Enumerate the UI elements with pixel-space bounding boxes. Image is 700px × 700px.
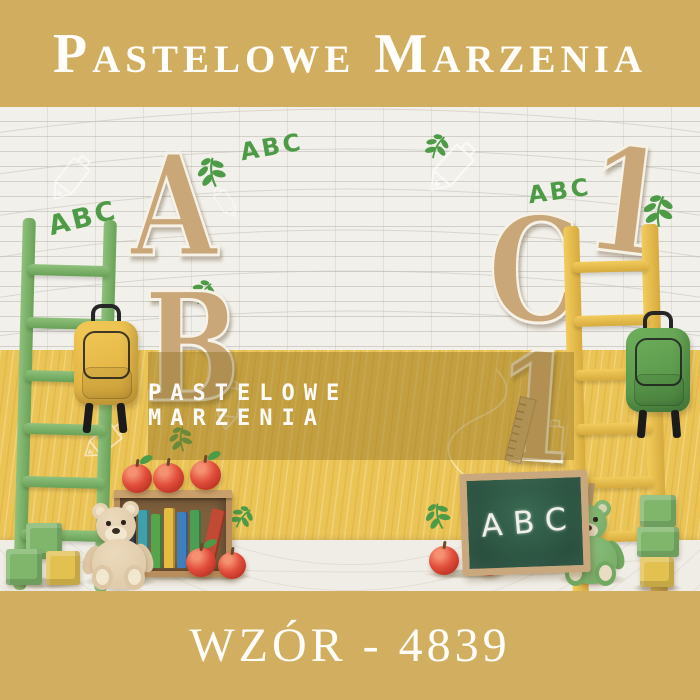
backpack-pocket <box>634 374 685 406</box>
teddy-nose <box>112 528 120 534</box>
watermark-text: PASTELOWE MARZENIA <box>148 381 574 431</box>
teddy-bear-beige <box>86 499 152 591</box>
teddy-eye <box>121 520 126 525</box>
yellow-backpack <box>74 313 138 405</box>
apple <box>122 464 152 493</box>
apple-stem <box>442 541 446 549</box>
backdrop-scene: ABC ABC ABC A B C 1 1 <box>0 107 700 591</box>
backdrop-sample-card: Pastelowe Marzenia <box>0 0 700 700</box>
ladder-rung <box>27 264 109 277</box>
ladder-rung <box>572 260 648 273</box>
backpack-handle <box>91 304 121 322</box>
backpack-body <box>626 328 690 412</box>
toy-block-yellow <box>46 551 80 585</box>
teddy-eye <box>106 521 111 526</box>
header-banner: Pastelowe Marzenia <box>0 0 700 107</box>
teddy-foot <box>124 565 145 590</box>
watermark-band: PASTELOWE MARZENIA <box>148 352 574 460</box>
teddy-foot <box>595 561 616 586</box>
teddy-eye <box>593 517 598 522</box>
toy-block-green <box>637 527 679 557</box>
pattern-number: WZÓR - 4839 <box>189 618 510 673</box>
book-spine <box>164 508 175 568</box>
chalkboard: ABC <box>459 470 590 576</box>
apple <box>429 546 459 575</box>
apple <box>186 548 216 577</box>
apple-stem <box>230 547 234 555</box>
backpack-pocket <box>82 367 133 399</box>
backpack-handle <box>643 311 673 329</box>
backpack-body <box>74 321 138 405</box>
wooden-letter-a: A <box>131 137 215 277</box>
toy-block-green <box>640 495 676 527</box>
apple <box>190 460 221 490</box>
toy-block-yellow <box>640 557 674 587</box>
ladder-rung <box>22 476 104 489</box>
apple <box>153 463 184 493</box>
footer-banner: WZÓR - 4839 <box>0 591 700 700</box>
brand-title: Pastelowe Marzenia <box>53 22 647 86</box>
toy-block-green <box>6 549 42 585</box>
ladder-rung <box>23 423 105 436</box>
green-backpack <box>626 320 690 412</box>
teddy-foot <box>92 565 113 590</box>
chalkboard-text: ABC <box>471 501 578 546</box>
apple <box>218 552 246 579</box>
